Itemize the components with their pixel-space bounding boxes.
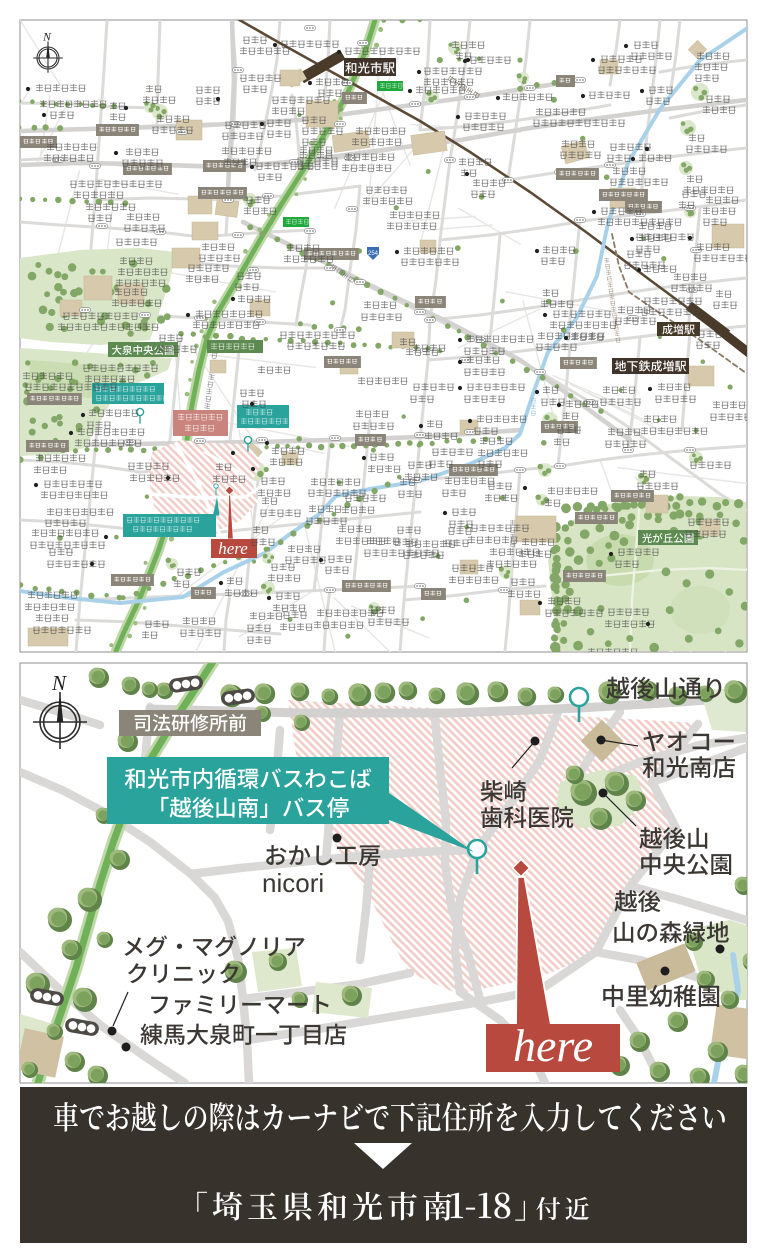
svg-text:here: here (218, 539, 248, 558)
svg-text:N: N (42, 30, 52, 43)
svg-text:254: 254 (368, 251, 379, 257)
svg-text:here: here (513, 1020, 593, 1071)
svg-text:nicori: nicori (262, 868, 324, 898)
svg-text:N: N (51, 671, 67, 695)
